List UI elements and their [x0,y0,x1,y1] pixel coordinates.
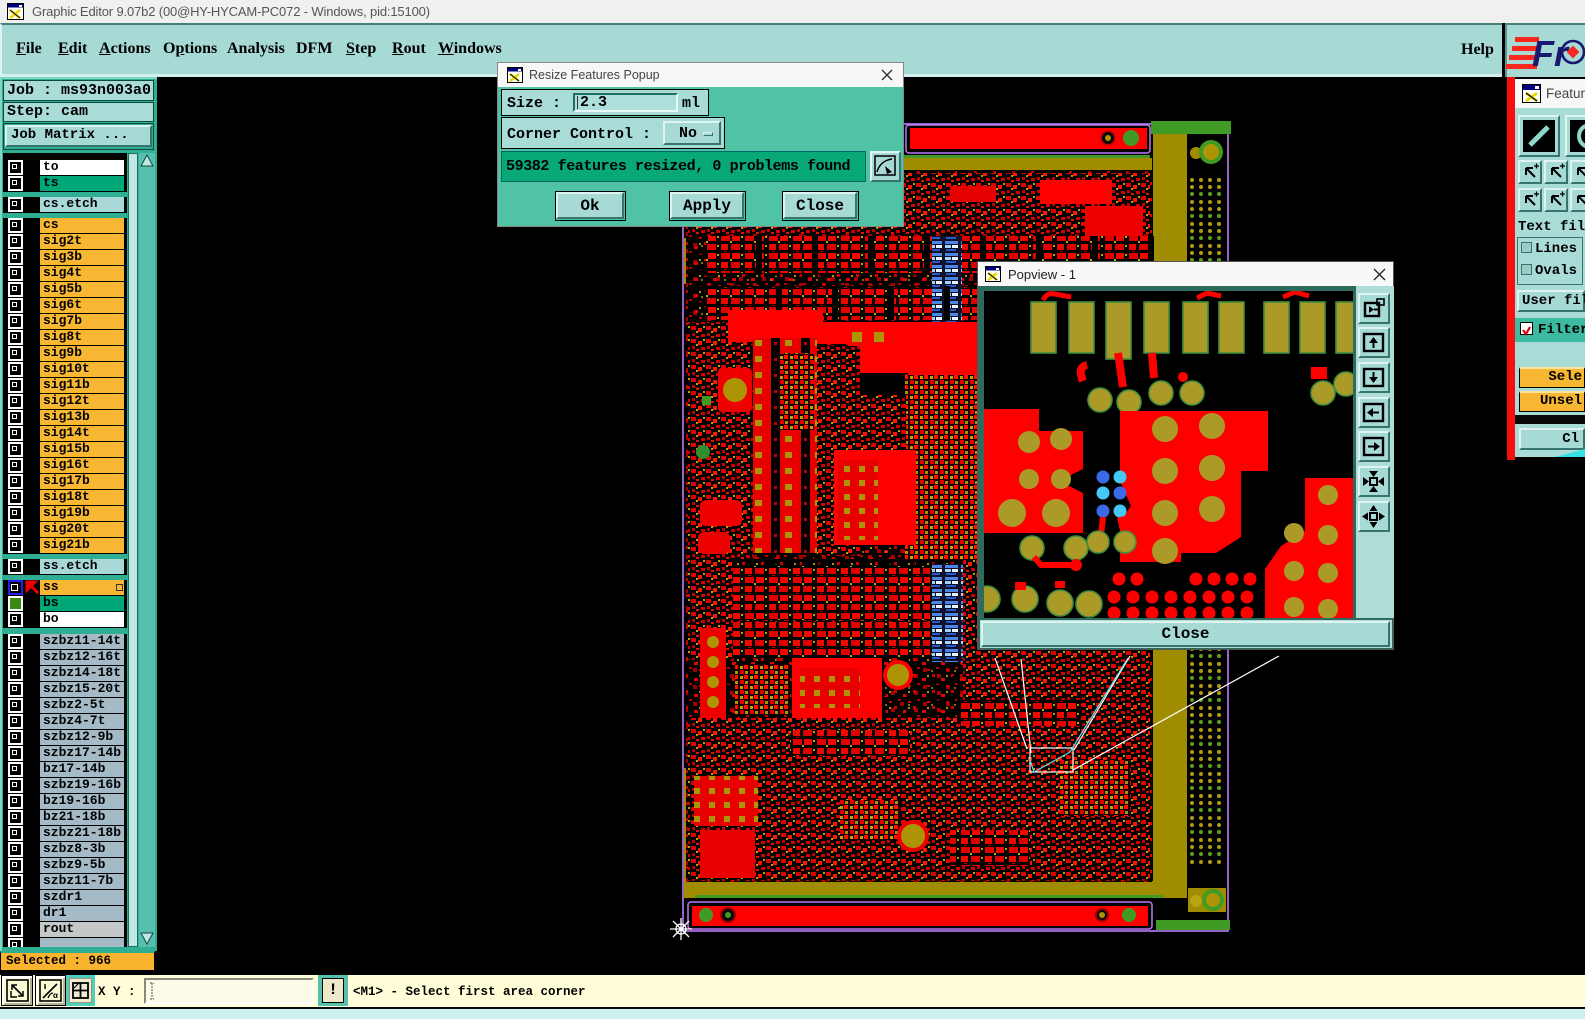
svg-text:α: α [53,991,58,1000]
svg-text:Fr: Fr [1532,33,1570,74]
